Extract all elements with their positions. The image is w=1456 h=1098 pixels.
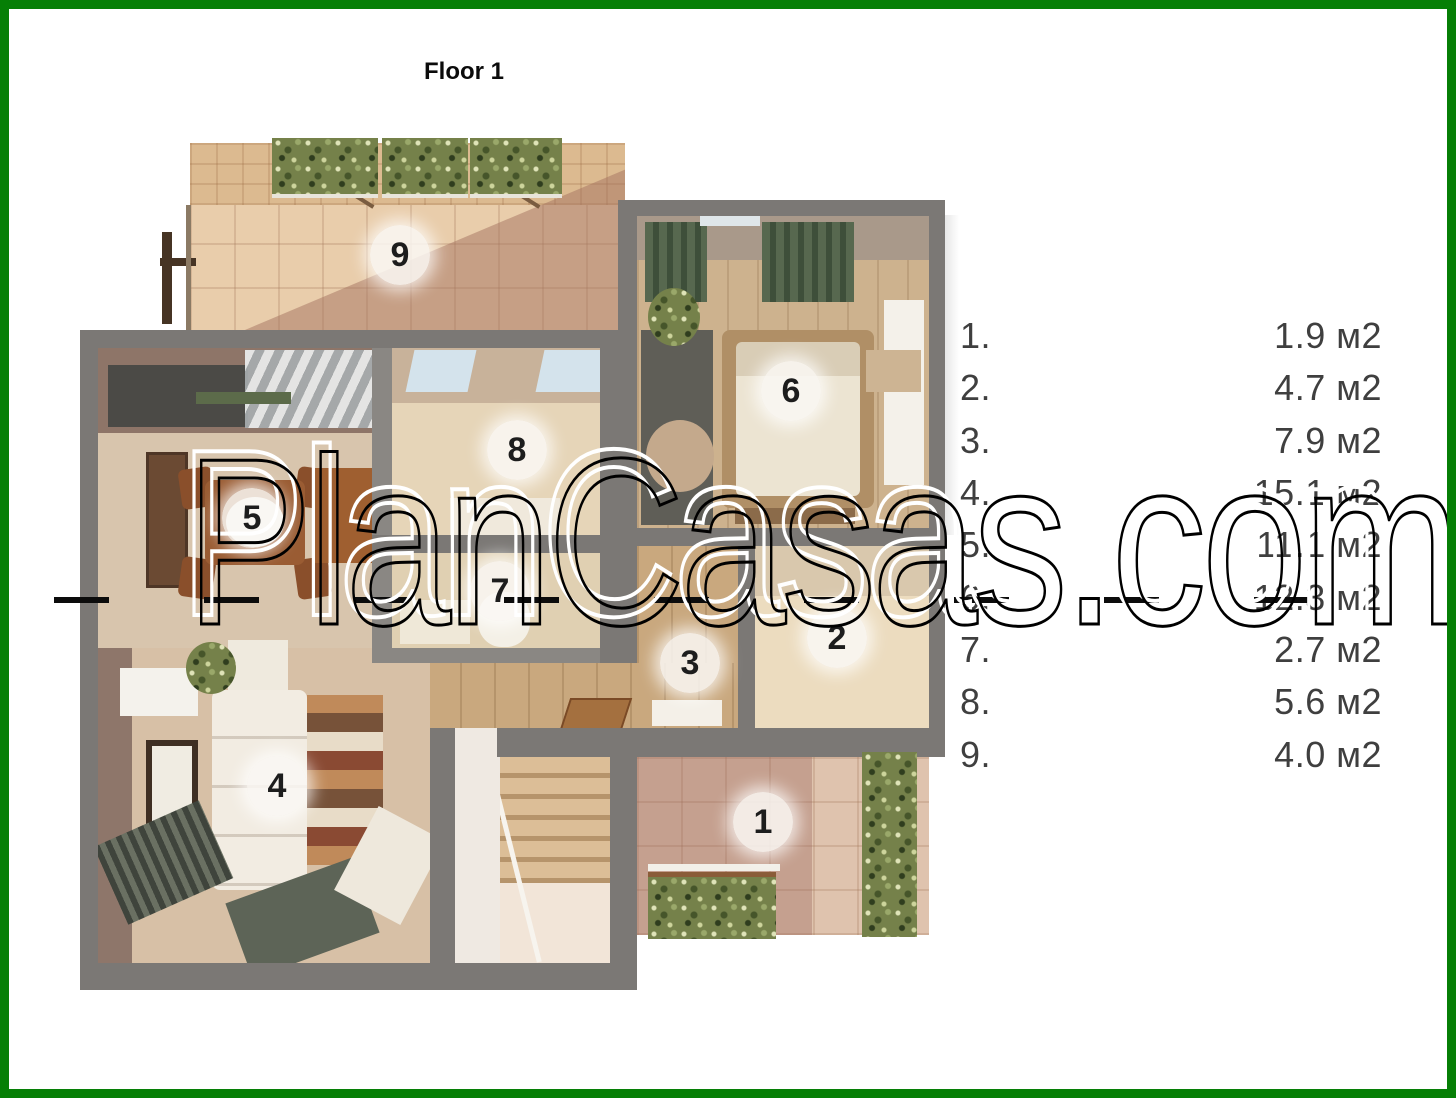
curtain xyxy=(762,222,854,302)
skylight xyxy=(406,350,477,392)
flower-planter xyxy=(272,138,378,198)
legend-row: 9. 4.0 м2 xyxy=(960,728,1382,780)
wall xyxy=(80,330,98,990)
room-badge-2: 2 xyxy=(807,608,867,668)
kitchen-cabinet xyxy=(315,468,373,563)
plant-ledge xyxy=(196,392,291,404)
potted-plant xyxy=(648,288,700,346)
room-badge-9: 9 xyxy=(370,225,430,285)
legend-area: 7.9 м2 xyxy=(1274,420,1382,462)
wall xyxy=(372,648,600,663)
legend-row: 4. 15.1 м2 xyxy=(960,467,1382,519)
staircase-wall-face xyxy=(455,728,500,963)
flower-planter xyxy=(470,138,562,198)
porch-railing xyxy=(648,864,780,871)
window xyxy=(700,216,760,226)
legend-number: 6. xyxy=(960,577,991,619)
house-shadow xyxy=(945,215,959,535)
area-legend: 1. 1.9 м2 2. 4.7 м2 3. 7.9 м2 4. 15.1 м2… xyxy=(960,310,1382,781)
page: Floor 1 xyxy=(0,0,1456,1098)
legend-row: 8. 5.6 м2 xyxy=(960,676,1382,728)
wall xyxy=(618,200,945,216)
door xyxy=(884,300,924,485)
floor-hatch xyxy=(560,698,632,730)
legend-area: 4.0 м2 xyxy=(1274,734,1382,776)
legend-number: 9. xyxy=(960,734,991,776)
potted-plant xyxy=(186,642,236,694)
room-badge-1: 1 xyxy=(733,792,793,852)
staircase-landing xyxy=(500,883,610,963)
wall xyxy=(80,963,637,990)
wall xyxy=(372,348,392,663)
door-mat xyxy=(652,700,722,726)
side-table xyxy=(866,350,921,392)
legend-number: 5. xyxy=(960,524,991,566)
cabinet xyxy=(450,498,560,540)
legend-number: 3. xyxy=(960,420,991,462)
fence-post xyxy=(162,232,172,324)
legend-number: 1. xyxy=(960,315,991,357)
room-badge-4: 4 xyxy=(247,756,307,816)
legend-row: 6. 12.3 м2 xyxy=(960,571,1382,623)
legend-area: 1.9 м2 xyxy=(1274,315,1382,357)
flower-planter xyxy=(382,138,468,198)
legend-area: 11.1 м2 xyxy=(1256,524,1382,566)
wall xyxy=(80,330,630,348)
wall xyxy=(618,200,637,330)
glass-awning xyxy=(245,350,375,428)
wall xyxy=(610,757,637,990)
wall xyxy=(618,528,945,546)
room-badge-3: 3 xyxy=(660,633,720,693)
legend-area: 2.7 м2 xyxy=(1274,629,1382,671)
flower-hedge xyxy=(862,752,917,937)
pouf xyxy=(646,420,714,492)
legend-number: 2. xyxy=(960,367,991,409)
legend-number: 7. xyxy=(960,629,991,671)
room-badge-8: 8 xyxy=(487,420,547,480)
legend-area: 5.6 м2 xyxy=(1274,681,1382,723)
legend-row: 5. 11.1 м2 xyxy=(960,519,1382,571)
legend-area: 4.7 м2 xyxy=(1274,367,1382,409)
legend-row: 1. 1.9 м2 xyxy=(960,310,1382,362)
legend-number: 4. xyxy=(960,472,991,514)
legend-row: 7. 2.7 м2 xyxy=(960,624,1382,676)
room-badge-7: 7 xyxy=(470,561,530,621)
wall xyxy=(738,546,755,730)
legend-area: 12.3 м2 xyxy=(1254,577,1382,619)
wall xyxy=(430,728,455,990)
terrace-railing xyxy=(186,205,191,333)
bed-bench xyxy=(735,508,855,524)
legend-row: 2. 4.7 м2 xyxy=(960,362,1382,414)
vanity xyxy=(400,600,470,644)
page-title: Floor 1 xyxy=(424,58,504,86)
room-badge-6: 6 xyxy=(761,361,821,421)
legend-area: 15.1 м2 xyxy=(1254,472,1382,514)
wall xyxy=(372,535,637,553)
wall xyxy=(600,330,637,663)
flower-planter xyxy=(648,872,776,939)
room-badge-5: 5 xyxy=(222,488,282,548)
legend-row: 3. 7.9 м2 xyxy=(960,415,1382,467)
wall xyxy=(929,200,945,757)
legend-number: 8. xyxy=(960,681,991,723)
